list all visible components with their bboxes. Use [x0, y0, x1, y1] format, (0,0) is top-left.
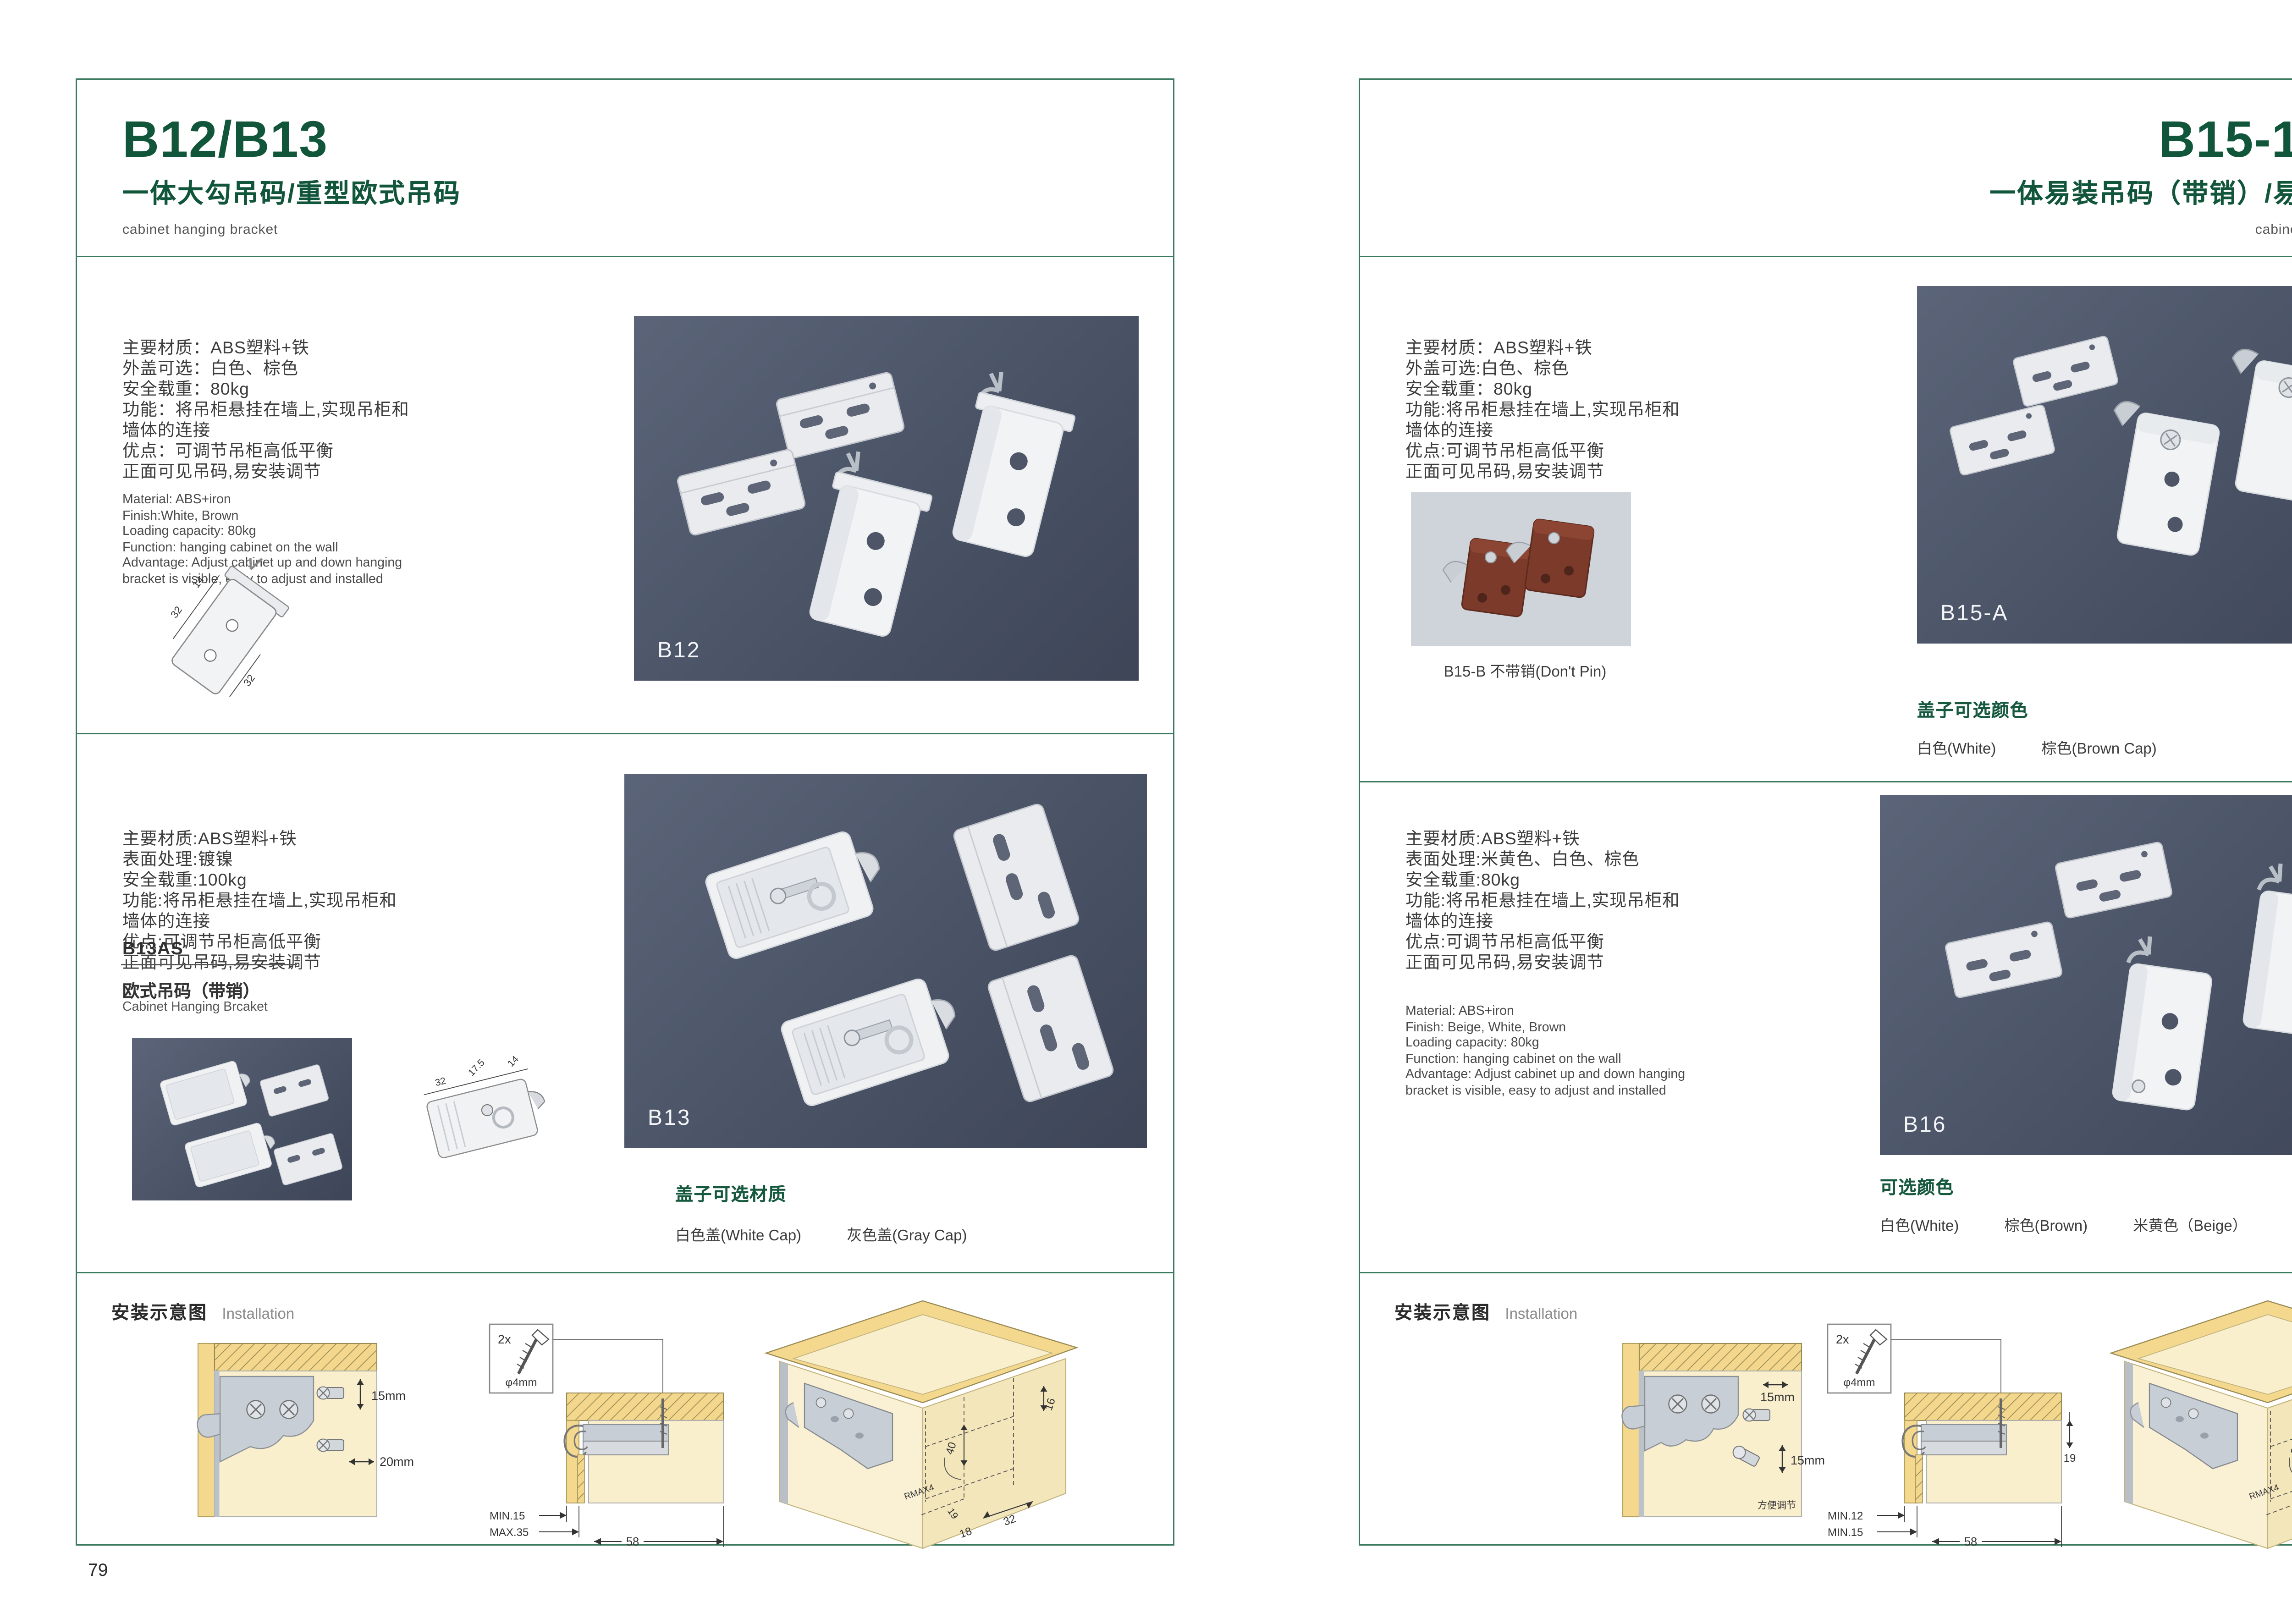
spec-line: 主要材质：ABS塑料+铁: [1405, 338, 1680, 359]
spec-line: 正面可见吊码,易安装调节: [1405, 953, 1680, 974]
b15a-photo-label: B15-A: [1940, 602, 2008, 627]
install-diagram-3d: 16 40 RMAX4 19 18 32: [758, 1293, 1081, 1554]
adjust-note-label: 方便调节: [1758, 1500, 1796, 1511]
b13as-product-photo: [132, 1038, 352, 1200]
divider: [1360, 1272, 2292, 1273]
spec-line: 墙体的连接: [122, 912, 397, 932]
b15-options-title: 盖子可选颜色: [1917, 696, 2028, 722]
spec-line: 主要材质：ABS塑料+铁: [122, 338, 409, 359]
b16-specs-en: Material: ABS+iron Finish: Beige, White,…: [1405, 1004, 1685, 1100]
option-beige: 米黄色（Beige）: [2133, 1218, 2247, 1235]
spec-line: 正面可见吊码,易安装调节: [122, 462, 409, 483]
dimension-label: 15mm: [1760, 1390, 1795, 1404]
page-title: B12/B13: [122, 113, 1128, 168]
spec-line: Loading capacity: 80kg: [1405, 1036, 1685, 1052]
b15a-photo-graphic: [1917, 286, 2292, 644]
dimension-label: 14: [190, 574, 206, 590]
dimension-label: 15mm: [1791, 1453, 1825, 1467]
spec-line: Function: hanging cabinet on the wall: [122, 540, 402, 556]
b13-options-title: 盖子可选材质: [675, 1180, 787, 1206]
wall-rail-shape: [952, 803, 1080, 952]
spec-line: bracket is visible, easy to adjust and i…: [1405, 1084, 1685, 1100]
spec-line: 墙体的连接: [1405, 912, 1680, 932]
spec-line: 正面可见吊码,易安装调节: [1405, 462, 1680, 483]
dimension-label: 17.5: [466, 1057, 487, 1078]
installation-title-cn: 安装示意图: [1394, 1302, 1491, 1323]
installation-title-en: Installation: [1505, 1306, 1577, 1323]
cabinet-bracket-shape: [160, 1058, 256, 1126]
b13-photo-label: B13: [648, 1107, 691, 1132]
b16-photo-label: B16: [1903, 1114, 1946, 1139]
spec-line: 功能:将吊柜悬挂在墙上,实现吊柜和: [122, 891, 397, 912]
spec-line: 外盖可选：白色、棕色: [122, 359, 409, 380]
install-diagram-rail: 2x φ4mm MIN.15 MAX.35: [487, 1321, 741, 1555]
catalog-spread: B12/B13 一体大勾吊码/重型欧式吊码 cabinet hanging br…: [0, 0, 2292, 1624]
spec-line: 主要材质:ABS塑料+铁: [122, 829, 397, 850]
catalog-page-79: B12/B13 一体大勾吊码/重型欧式吊码 cabinet hanging br…: [76, 78, 1174, 1546]
installation-title: 安装示意图 Installation: [111, 1298, 294, 1326]
b15a-product-photo: B15-A: [1917, 286, 2292, 644]
dimension-label: MIN.15: [490, 1510, 525, 1522]
page-header: B15-1/B16 一体易装吊码（带销）/易调节吊码 cabinet hangi…: [1405, 113, 2292, 238]
b12-specs-cn: 主要材质：ABS塑料+铁 外盖可选：白色、棕色 安全载重：80kg 功能：将吊柜…: [122, 338, 409, 483]
divider: [1360, 256, 2292, 257]
spec-line: 墙体的连接: [1405, 421, 1680, 441]
spec-line: 优点:可调节吊柜高低平衡: [1405, 441, 1680, 462]
dimension-label: 19: [2064, 1452, 2076, 1464]
b13as-photo-graphic: [132, 1038, 352, 1200]
adjuster-plug-icon: [317, 1439, 344, 1452]
hanging-bracket-shape: [800, 448, 938, 640]
wall-rail-shape: [2055, 842, 2172, 919]
divider: [1360, 781, 2292, 782]
b15b-photo-graphic: [1411, 492, 1631, 646]
screw-qty-label: 2x: [498, 1332, 511, 1346]
b12-photo-graphic: [634, 316, 1139, 681]
dimension-label: 32: [168, 604, 184, 620]
b15b-product-photo: [1411, 492, 1631, 646]
dimension-label: 58: [1964, 1536, 1977, 1548]
page-category: cabinet hanging bracket: [1405, 223, 2292, 238]
page-subtitle: 一体易装吊码（带销）/易调节吊码: [1405, 173, 2292, 210]
b13as-name-cn: 欧式吊码（带销）: [122, 976, 260, 1002]
installation-title: 安装示意图 Installation: [1394, 1298, 1577, 1326]
spec-line: 主要材质:ABS塑料+铁: [1405, 829, 1680, 850]
spec-line: 功能:将吊柜悬挂在墙上,实现吊柜和: [1405, 891, 1680, 912]
wall-rail-shape: [273, 1133, 342, 1186]
divider: [77, 256, 1173, 257]
b13-options-row: 白色盖(White Cap) 灰色盖(Gray Cap): [675, 1224, 1008, 1246]
option-gray-cap: 灰色盖(Gray Cap): [847, 1228, 967, 1244]
wall-rail-shape: [259, 1064, 329, 1117]
dimension-label: MIN.15: [1828, 1526, 1863, 1539]
cabinet-bracket-shape: [779, 971, 968, 1107]
dimension-label: 20mm: [380, 1455, 414, 1469]
wall-rail-shape: [677, 449, 806, 536]
b13-product-photo: B13: [624, 774, 1147, 1148]
spec-line: 安全载重:80kg: [1405, 870, 1680, 891]
spec-line: 墙体的连接: [122, 421, 409, 441]
option-white-cap: 白色盖(White Cap): [675, 1228, 801, 1244]
b12-product-photo: B12: [634, 316, 1139, 681]
b16-options-title: 可选颜色: [1880, 1173, 1954, 1199]
page-number-left: 79: [88, 1559, 108, 1580]
b13as-dimension-drawing: 32 17.5 14: [411, 1038, 569, 1183]
wall-rail-shape: [776, 372, 905, 459]
cabinet-bracket-shape: [704, 824, 893, 960]
cabinet-bracket-shape: [184, 1120, 281, 1188]
b16-product-photo: B16: [1880, 795, 2292, 1155]
spec-line: Material: ABS+iron: [1405, 1004, 1685, 1020]
dimension-label: 32: [434, 1075, 447, 1088]
spec-line: 优点：可调节吊柜高低平衡: [122, 441, 409, 462]
install-diagram-rail: 2x φ4mm 19 MIN.12: [1825, 1321, 2079, 1555]
page-title: B15-1/B16: [1405, 113, 2292, 168]
divider: [77, 733, 1173, 734]
option-brown-cap: 棕色(Brown Cap): [2042, 741, 2157, 758]
page-category: cabinet hanging bracket: [122, 223, 1128, 238]
hanging-bracket-shape: [2109, 934, 2217, 1111]
dimension-label: 15mm: [371, 1389, 406, 1403]
b16-options-row: 白色(White) 棕色(Brown) 米黄色（Beige）: [1880, 1214, 2289, 1236]
installation-title-en: Installation: [222, 1306, 294, 1323]
b16-photo-graphic: [1880, 795, 2292, 1155]
b13as-name-en: Cabinet Hanging Brcaket: [122, 1000, 268, 1015]
spec-line: 安全载重：80kg: [122, 380, 409, 400]
option-white: 白色(White): [1880, 1218, 1959, 1235]
screw-qty-label: 2x: [1836, 1332, 1849, 1346]
wall-rail-shape: [1949, 404, 2055, 476]
b12-dimension-drawing: 14 32 32: [118, 558, 338, 734]
dimension-label: MAX.35: [490, 1526, 529, 1539]
spec-line: 表面处理:镀镍: [122, 850, 397, 870]
screw-diameter-label: φ4mm: [506, 1376, 537, 1389]
installation-title-cn: 安装示意图: [111, 1302, 208, 1323]
spec-line: 外盖可选:白色、棕色: [1405, 359, 1680, 380]
spec-line: 功能：将吊柜悬挂在墙上,实现吊柜和: [122, 400, 409, 421]
catalog-page-80: B15-1/B16 一体易装吊码（带销）/易调节吊码 cabinet hangi…: [1359, 78, 2292, 1546]
spec-line: Finish: Beige, White, Brown: [1405, 1020, 1685, 1036]
spec-line: Function: hanging cabinet on the wall: [1405, 1051, 1685, 1068]
dimension-label: MIN.12: [1828, 1510, 1863, 1522]
dimension-label: 32: [241, 672, 257, 688]
hanging-bracket-shape: [2210, 347, 2292, 505]
spec-line: 表面处理:米黄色、白色、棕色: [1405, 850, 1680, 870]
hanging-bracket-shape: [2092, 400, 2222, 556]
dimension-label: 58: [626, 1536, 639, 1548]
b16-specs-cn: 主要材质:ABS塑料+铁 表面处理:米黄色、白色、棕色 安全载重:80kg 功能…: [1405, 829, 1680, 974]
spec-line: 优点:可调节吊柜高低平衡: [1405, 932, 1680, 953]
spec-line: 安全载重:100kg: [122, 870, 397, 891]
wall-rail-shape: [1945, 921, 2062, 998]
b13-photo-graphic: [624, 774, 1147, 1148]
page-header: B12/B13 一体大勾吊码/重型欧式吊码 cabinet hanging br…: [122, 113, 1128, 238]
install-diagram-section: 15mm 20mm: [190, 1338, 437, 1524]
screw-diameter-label: φ4mm: [1844, 1376, 1875, 1389]
dimension-label: 14: [506, 1054, 521, 1069]
b12-photo-label: B12: [657, 639, 700, 664]
spec-line: Loading capacity: 80kg: [122, 524, 402, 540]
b13as-model-code: B13AS: [122, 938, 183, 958]
spec-line: Material: ABS+iron: [122, 492, 402, 508]
option-brown: 棕色(Brown): [2005, 1218, 2088, 1235]
wall-rail-shape: [986, 954, 1114, 1103]
hanging-bracket-shape: [943, 368, 1081, 560]
divider: [77, 1272, 1173, 1273]
hanging-bracket-shape: [2240, 861, 2292, 1038]
option-white: 白色(White): [1917, 741, 1996, 758]
install-diagram-3d: 30 32 RMAX4 19 20 32: [2103, 1293, 2292, 1554]
page-subtitle: 一体大勾吊码/重型欧式吊码: [122, 173, 1128, 210]
b15b-caption: B15-B 不带销(Don't Pin): [1388, 660, 1663, 682]
adjuster-plug-icon: [1743, 1409, 1770, 1421]
b15-options-row: 白色(White) 棕色(Brown Cap): [1917, 737, 2198, 759]
spec-line: Finish:White, Brown: [122, 508, 402, 524]
spec-line: 安全载重：80kg: [1405, 380, 1680, 400]
spec-line: 功能:将吊柜悬挂在墙上,实现吊柜和: [1405, 400, 1680, 421]
model-underline: [121, 964, 297, 965]
adjuster-plug-icon: [317, 1387, 344, 1399]
spec-line: Advantage: Adjust cabinet up and down ha…: [1405, 1068, 1685, 1084]
b15-specs-cn: 主要材质：ABS塑料+铁 外盖可选:白色、棕色 安全载重：80kg 功能:将吊柜…: [1405, 338, 1680, 483]
wall-rail-shape: [2012, 336, 2118, 407]
